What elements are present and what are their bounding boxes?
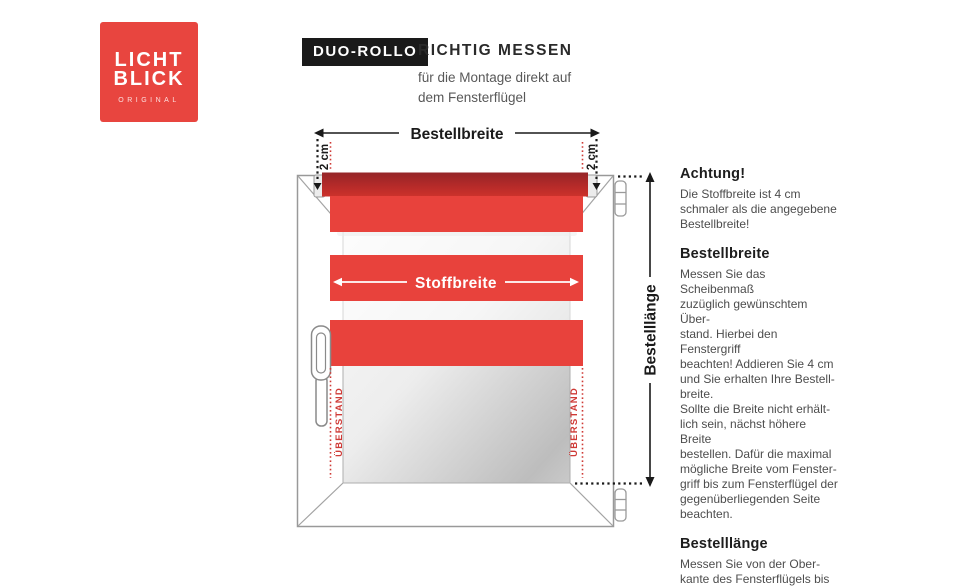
page: LICHT BLICK ORIGINAL DUO-ROLLO RICHTIG M… — [0, 0, 960, 587]
ueberstand-label-left: ÜBERSTAND — [334, 387, 345, 457]
info-body-achtung: Die Stoffbreite ist 4 cm schmaler als di… — [680, 187, 840, 232]
ueberstand-label-right: ÜBERSTAND — [569, 387, 580, 457]
page-title: RICHTIG MESSEN — [418, 42, 572, 60]
offset-2cm-label-right: 2 cm — [586, 144, 598, 170]
bestellbreite-arrowhead-right — [591, 129, 601, 138]
info-section-bestelllaenge: Bestelllänge Messen Sie von der Ober- ka… — [680, 536, 840, 587]
bestelllaenge-arrowhead-bottom — [646, 477, 655, 487]
hinge-top — [615, 181, 626, 216]
info-heading-bestellbreite: Bestellbreite — [680, 246, 840, 262]
info-heading-achtung: Achtung! — [680, 166, 840, 182]
fabric-stripe-1 — [330, 196, 583, 232]
fabric-stripe-3 — [330, 320, 583, 366]
bestelllaenge-arrowhead-top — [646, 172, 655, 182]
info-section-achtung: Achtung! Die Stoffbreite ist 4 cm schmal… — [680, 166, 840, 232]
info-column: Achtung! Die Stoffbreite ist 4 cm schmal… — [680, 166, 840, 587]
sheer-band-1 — [330, 232, 583, 255]
roller-tube — [322, 173, 588, 197]
measurement-diagram: Stoffbreite Bestellbreite 2 cm 2 cm — [270, 120, 680, 545]
info-body-bestelllaenge: Messen Sie von der Ober- kante des Fenst… — [680, 557, 840, 587]
bestelllaenge-label: Bestelllänge — [643, 284, 660, 376]
brand-name-line2: BLICK — [113, 70, 184, 89]
brand-name-line1: LICHT — [115, 51, 184, 70]
brand-sub-label: ORIGINAL — [118, 97, 179, 104]
product-badge: DUO-ROLLO — [302, 38, 428, 66]
info-heading-bestelllaenge: Bestelllänge — [680, 536, 840, 552]
bestellbreite-label: Bestellbreite — [410, 126, 503, 143]
hinge-bottom — [615, 489, 626, 521]
info-body-bestellbreite: Messen Sie das Scheibenmaß zuzüglich gew… — [680, 267, 840, 522]
stoffbreite-label: Stoffbreite — [415, 275, 497, 292]
page-subtitle: für die Montage direkt auf dem Fensterfl… — [418, 68, 571, 108]
bestellbreite-arrowhead-left — [314, 129, 324, 138]
offset-2cm-label-left: 2 cm — [319, 144, 331, 170]
info-section-bestellbreite: Bestellbreite Messen Sie das Scheibenmaß… — [680, 246, 840, 522]
fabric-offset-guides: 2 cm 2 cm — [319, 142, 598, 171]
sheer-band-2 — [330, 301, 583, 320]
brand-logo: LICHT BLICK ORIGINAL — [100, 22, 198, 122]
